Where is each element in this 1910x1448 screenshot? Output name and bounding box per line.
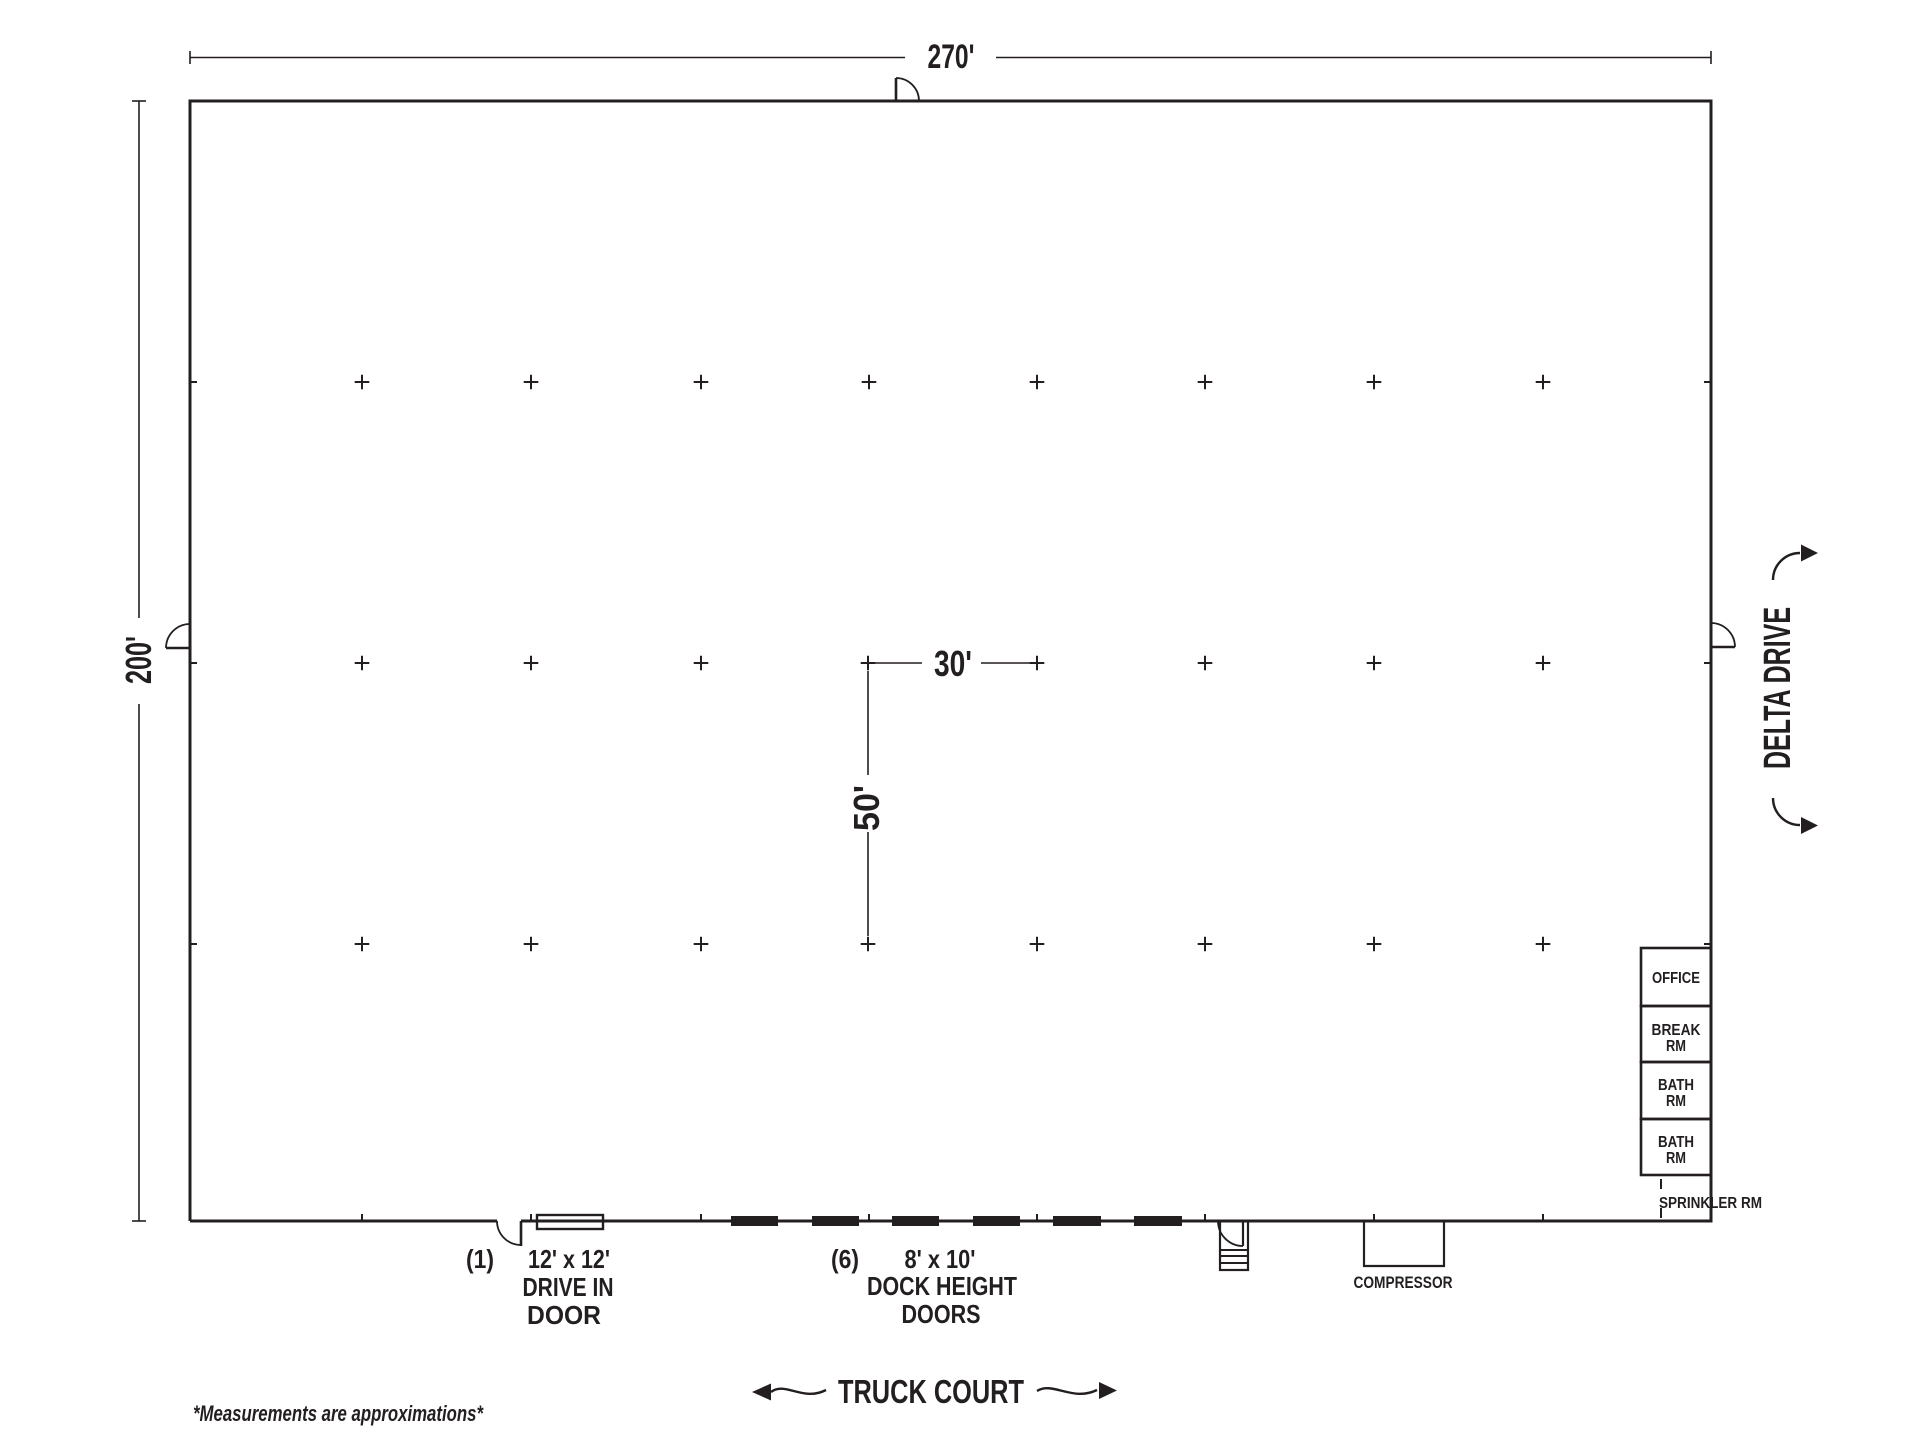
- svg-text:270': 270': [928, 38, 975, 76]
- svg-text:DOCK HEIGHT: DOCK HEIGHT: [867, 1271, 1017, 1301]
- svg-text:200': 200': [118, 636, 159, 684]
- svg-text:DRIVE IN: DRIVE IN: [523, 1272, 614, 1302]
- svg-text:RM: RM: [1666, 1038, 1686, 1055]
- svg-text:BATH: BATH: [1658, 1077, 1694, 1094]
- svg-text:50': 50': [846, 785, 887, 831]
- svg-text:OFFICE: OFFICE: [1652, 970, 1700, 987]
- svg-text:RM: RM: [1666, 1150, 1686, 1167]
- svg-text:(6): (6): [831, 1244, 859, 1274]
- svg-text:12' x 12': 12' x 12': [528, 1244, 610, 1274]
- svg-text:COMPRESSOR: COMPRESSOR: [1354, 1273, 1453, 1292]
- svg-text:TRUCK COURT: TRUCK COURT: [838, 1373, 1024, 1410]
- svg-text:DOOR: DOOR: [527, 1300, 601, 1330]
- svg-text:BREAK: BREAK: [1652, 1022, 1701, 1039]
- svg-text:30': 30': [934, 643, 972, 684]
- svg-text:8' x 10': 8' x 10': [905, 1244, 976, 1274]
- svg-text:BATH: BATH: [1658, 1134, 1694, 1151]
- svg-text:*Measurements are approximatio: *Measurements are approximations*: [193, 1401, 484, 1426]
- svg-text:(1): (1): [466, 1244, 494, 1274]
- svg-text:DOORS: DOORS: [902, 1299, 981, 1329]
- svg-text:DELTA DRIVE: DELTA DRIVE: [1757, 607, 1799, 769]
- svg-text:SPRINKLER RM: SPRINKLER RM: [1659, 1195, 1762, 1212]
- svg-text:RM: RM: [1666, 1093, 1686, 1110]
